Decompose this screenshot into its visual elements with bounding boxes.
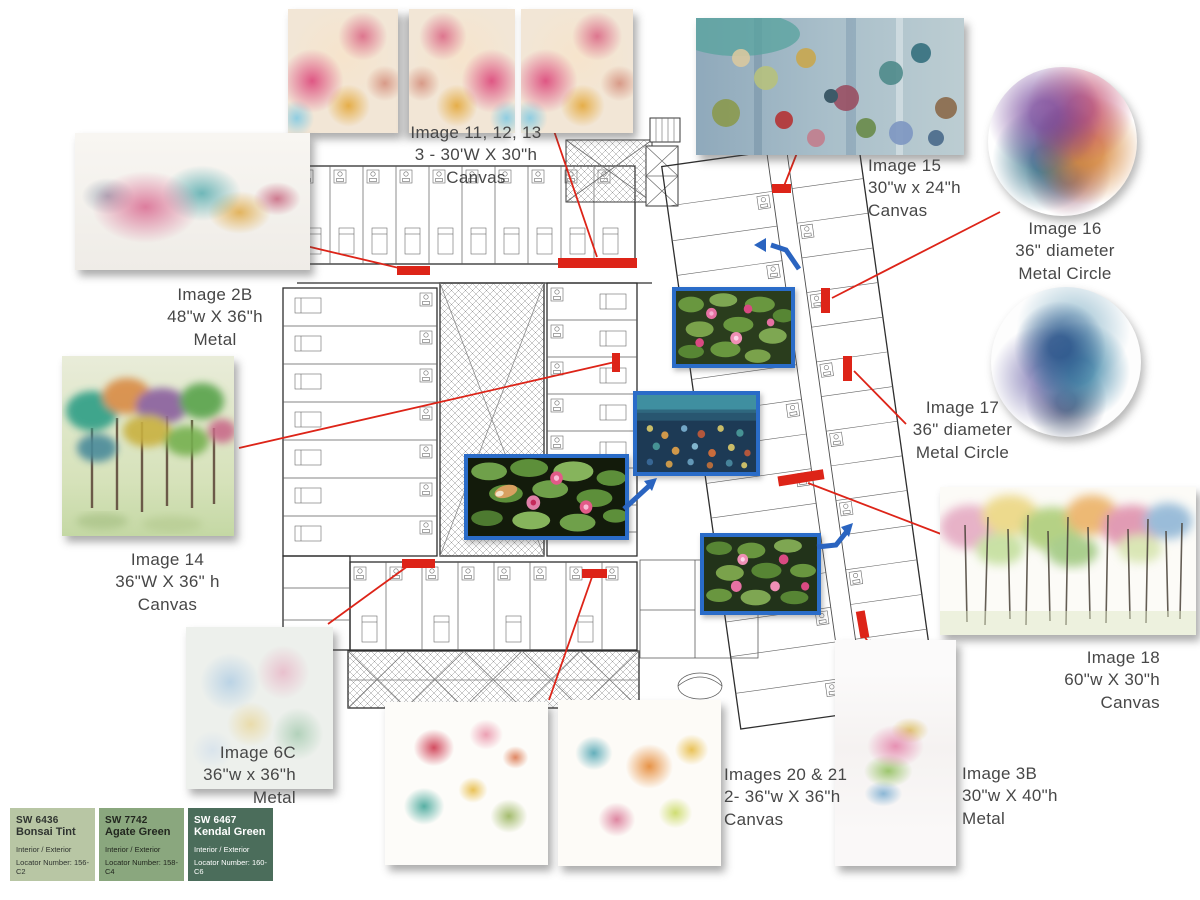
artwork-title: Image 6C [100,742,296,764]
painting-image-3b [835,640,956,866]
artwork-medium: Metal [962,808,1102,830]
artwork-medium: Canvas [724,809,899,831]
paint-swatch-kendal-green: SW 6467 Kendal Green Interior / Exterior… [188,808,273,881]
label-image-16: Image 16 36" diameter Metal Circle [975,218,1155,285]
artwork-size: 2- 36"w X 36"h [724,786,899,808]
red-location-markers [397,184,883,717]
artwork-title: Image 16 [975,218,1155,240]
swatch-code: SW 7742 [105,815,178,826]
painting-image-20 [385,702,548,865]
painting-image-18 [940,487,1196,635]
artwork-title: Image 11, 12, 13 [376,122,576,144]
artwork-medium: Metal Circle [975,263,1155,285]
artwork-title: Image 17 [880,397,1045,419]
painting-image-14 [62,356,234,536]
artwork-medium: Metal [100,787,296,809]
artwork-size: 30"w X 40"h [962,785,1102,807]
blue-direction-arrows [624,245,848,547]
painting-image-13 [521,9,633,133]
swatch-usage: Interior / Exterior [16,845,89,854]
paint-swatch-agate-green: SW 7742 Agate Green Interior / Exterior … [99,808,184,881]
swatch-name: Bonsai Tint [16,826,89,838]
artwork-title: Images 20 & 21 [724,764,899,786]
artwork-size: 36" diameter [880,419,1045,441]
painting-image-11 [288,9,398,133]
label-image-17: Image 17 36" diameter Metal Circle [880,397,1045,464]
swatch-usage: Interior / Exterior [194,845,267,854]
swatch-usage: Interior / Exterior [105,845,178,854]
swatch-code: SW 6467 [194,815,267,826]
artwork-size: 60"w X 30"h [1000,669,1160,691]
artwork-title: Image 3B [962,763,1102,785]
label-image-15: Image 15 30"w x 24"h Canvas [868,155,1018,222]
label-images-20-21: Images 20 & 21 2- 36"w X 36"h Canvas [724,764,899,831]
swatch-name: Kendal Green [194,826,267,838]
blue-arrowheads [644,238,853,537]
swatch-locator: Locator Number: 156-C2 [16,858,89,876]
art-placement-plan-board: Image 11, 12, 13 3 - 30'W X 30"h Canvas … [0,0,1200,900]
painting-image-15 [696,18,964,155]
label-image-14: Image 14 36"W X 36" h Canvas [75,549,260,616]
swatch-code: SW 6436 [16,815,89,826]
artwork-title: Image 18 [1000,647,1160,669]
artwork-title: Image 14 [75,549,260,571]
swatch-locator: Locator Number: 160-C6 [194,858,267,876]
label-image-3b: Image 3B 30"w X 40"h Metal [962,763,1102,830]
paint-swatch-bonsai-tint: SW 6436 Bonsai Tint Interior / Exterior … [10,808,95,881]
artwork-medium: Metal [120,329,310,351]
artwork-medium: Canvas [1000,692,1160,714]
artwork-medium: Canvas [376,167,576,189]
artwork-medium: Canvas [75,594,260,616]
artwork-title: Image 15 [868,155,1018,177]
swatch-locator: Locator Number: 158-C4 [105,858,178,876]
painting-image-2b [75,133,310,270]
label-image-2b: Image 2B 48"w X 36"h Metal [120,284,310,351]
label-image-6c: Image 6C 36"w x 36"h Metal [100,742,296,809]
artwork-medium: Metal Circle [880,442,1045,464]
painting-image-21 [558,700,721,866]
artwork-title: Image 2B [120,284,310,306]
painting-image-12 [409,9,515,133]
artwork-size: 36"W X 36" h [75,571,260,593]
artwork-size: 3 - 30'W X 30"h [376,144,576,166]
artwork-size: 36"w x 36"h [100,764,296,786]
swatch-name: Agate Green [105,826,178,838]
artwork-size: 36" diameter [975,240,1155,262]
artwork-size: 30"w x 24"h [868,177,1018,199]
label-image-18: Image 18 60"w X 30"h Canvas [1000,647,1160,714]
artwork-size: 48"w X 36"h [120,306,310,328]
label-images-11-12-13: Image 11, 12, 13 3 - 30'W X 30"h Canvas [376,122,576,189]
